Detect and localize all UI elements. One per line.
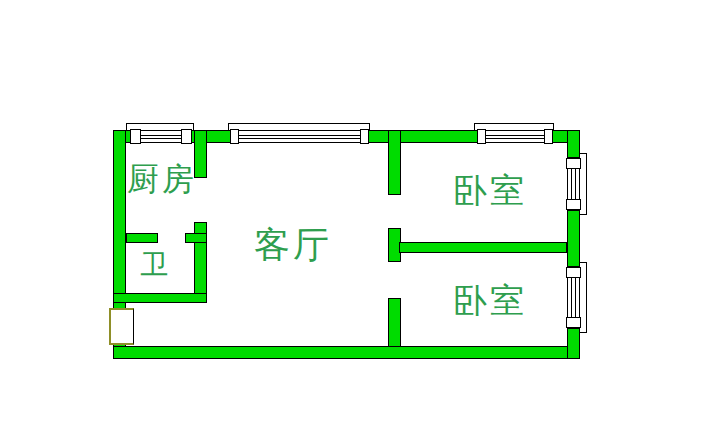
- outer-wall-bottom: [113, 346, 580, 359]
- room-label-bathroom: 卫: [126, 249, 186, 281]
- room-label-kitchen: 厨房: [102, 161, 222, 197]
- bathroom-wall-top-left: [126, 233, 158, 243]
- bedroom-bottom-east-window-glass: [567, 277, 580, 318]
- bedroom-top-north-window-glass: [485, 130, 545, 143]
- wall-bedroom-divider: [399, 242, 567, 253]
- living-room-window-frame-left: [230, 129, 239, 144]
- bedroom-top-north-window-frame-left: [477, 129, 486, 144]
- bedroom-top-north-window-frame-right: [544, 129, 553, 144]
- outer-wall-top-segment-3: [367, 130, 479, 143]
- outer-wall-right-segment-1: [567, 130, 580, 158]
- floor-plan-canvas: 厨房 客厅 卫 卧室 卧室: [0, 0, 710, 445]
- entrance-door-opening: [109, 308, 134, 345]
- partition-living-bedrooms-lower: [388, 298, 401, 347]
- bedroom-bottom-east-window-frame-bottom: [566, 317, 581, 328]
- bedroom-top-east-window-frame-bottom: [566, 199, 581, 210]
- bathroom-wall-bottom: [113, 293, 207, 303]
- outer-wall-right-segment-3: [567, 328, 580, 359]
- kitchen-window-frame-right: [181, 129, 192, 144]
- room-label-bedroom-top: 卧室: [430, 171, 550, 209]
- outer-wall-right-segment-2: [567, 210, 580, 267]
- living-room-window-frame-right: [360, 129, 369, 144]
- living-room-window-glass: [238, 130, 361, 143]
- bedroom-top-east-window-glass: [567, 168, 580, 200]
- room-label-living-room: 客厅: [233, 225, 353, 265]
- kitchen-window-frame-left: [130, 129, 141, 144]
- bedroom-top-east-window-frame-top: [566, 158, 581, 169]
- outer-wall-left: [113, 130, 126, 309]
- kitchen-window-glass: [140, 130, 182, 143]
- bathroom-wall-top-right: [185, 233, 207, 243]
- partition-living-bedrooms-upper: [388, 130, 401, 195]
- room-label-bedroom-bottom: 卧室: [430, 281, 550, 319]
- bedroom-bottom-east-window-frame-top: [566, 267, 581, 278]
